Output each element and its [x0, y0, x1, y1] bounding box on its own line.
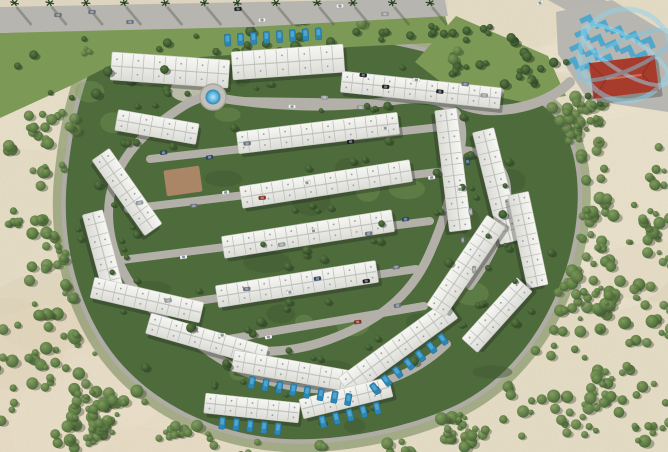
- car-icon: [218, 333, 226, 338]
- brick-plaza: [163, 166, 202, 197]
- car-icon: [222, 190, 230, 195]
- car-icon: [336, 4, 343, 8]
- car-icon: [468, 208, 473, 216]
- car-icon: [362, 279, 370, 284]
- car-icon: [382, 85, 389, 89]
- car-icon: [481, 93, 488, 97]
- car-icon: [428, 175, 436, 179]
- car-icon: [54, 13, 61, 17]
- car-icon: [461, 236, 465, 243]
- car-icon: [465, 158, 470, 166]
- car-icon: [321, 95, 328, 99]
- car-icon: [381, 126, 389, 130]
- car-icon: [314, 276, 322, 281]
- car-icon: [413, 78, 421, 82]
- car-icon: [458, 186, 462, 193]
- car-icon: [278, 242, 286, 247]
- car-icon: [234, 7, 241, 11]
- car-icon: [88, 10, 95, 14]
- car-icon: [243, 287, 251, 292]
- masterplan-svg: [0, 0, 668, 452]
- car-icon: [206, 155, 214, 160]
- car-icon: [357, 106, 364, 110]
- street: [240, 101, 380, 103]
- fountain-roundabout: [200, 84, 226, 110]
- car-icon: [243, 141, 250, 145]
- car-icon: [126, 20, 133, 24]
- car-icon: [359, 73, 367, 78]
- car-icon: [160, 150, 168, 155]
- car-icon: [180, 255, 188, 260]
- car-icon: [310, 229, 318, 234]
- car-icon: [288, 105, 295, 109]
- car-icon: [436, 89, 444, 94]
- car-icon: [164, 298, 172, 303]
- car-icon: [472, 266, 476, 273]
- car-icon: [190, 204, 197, 208]
- car-icon: [354, 320, 362, 325]
- car-icon: [258, 196, 265, 200]
- car-icon: [381, 12, 388, 16]
- car-icon: [461, 82, 469, 87]
- car-icon: [365, 231, 373, 236]
- car-icon: [258, 18, 265, 22]
- aerial-masterplan-image: [0, 0, 668, 452]
